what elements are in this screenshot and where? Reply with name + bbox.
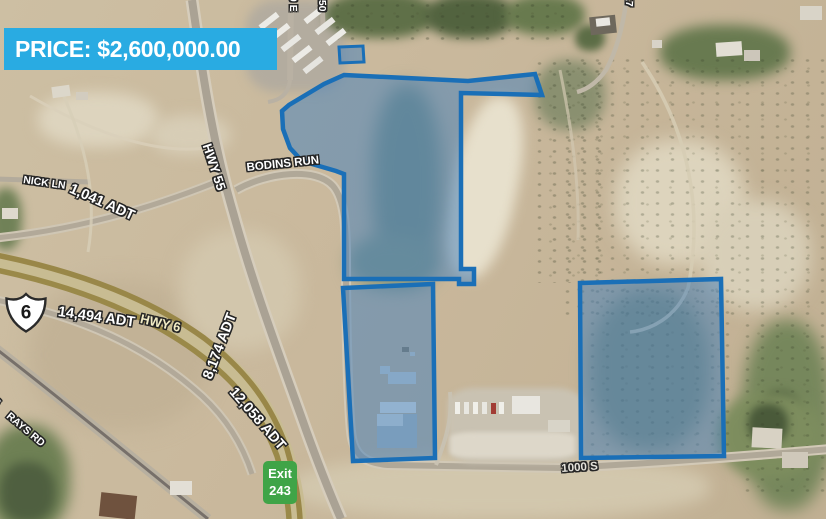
- traffic-count-12058: 12,058 ADT: [225, 385, 288, 454]
- aerial-listing-map: NICK LN 1,041 ADT HWY 55 BODINS RUN 14,4…: [0, 0, 826, 519]
- road-label-partial-s: S: [0, 396, 2, 409]
- building: [782, 452, 808, 468]
- building: [751, 427, 782, 449]
- building: [402, 347, 409, 352]
- building: [716, 41, 743, 57]
- building: [491, 403, 496, 414]
- building: [800, 6, 822, 20]
- building: [380, 402, 416, 413]
- building: [99, 492, 137, 519]
- building: [548, 420, 570, 432]
- terrain-patch: [180, 230, 300, 350]
- scrub-texture: [330, 0, 575, 42]
- building: [473, 402, 478, 414]
- building: [482, 402, 487, 414]
- road-label-1000-s: 1000 S: [561, 460, 598, 475]
- vegetation: [0, 188, 22, 250]
- building: [652, 40, 662, 48]
- building: [744, 50, 760, 61]
- building: [596, 17, 611, 26]
- building: [170, 481, 192, 495]
- terrain-patch: [38, 92, 158, 147]
- road-label-hwy55: HWY 55: [199, 142, 227, 192]
- traffic-count-1041: 1,041 ADT: [67, 182, 137, 225]
- exit-sign-line2: 243: [263, 483, 297, 499]
- exit-243-sign: Exit 243: [263, 461, 297, 504]
- road-label-bodins-run: BODINS RUN: [246, 154, 320, 174]
- scrub-texture: [585, 285, 740, 465]
- exit-sign-line1: Exit: [263, 466, 297, 482]
- building: [388, 372, 416, 384]
- building: [76, 92, 88, 100]
- building: [410, 352, 415, 356]
- building: [512, 396, 540, 414]
- scrub-texture: [740, 320, 826, 500]
- road-label-nick-ln: NICK LN: [22, 175, 66, 192]
- building: [464, 402, 469, 414]
- vegetation: [0, 462, 55, 519]
- scrub-texture: [532, 58, 607, 283]
- terrain-patch: [433, 90, 535, 284]
- road-label-50-e: 50 E: [286, 0, 298, 12]
- terrain-patch: [450, 432, 575, 458]
- building: [377, 414, 403, 426]
- vegetation: [348, 235, 438, 290]
- route-shield-number: 6: [21, 303, 32, 324]
- price-banner: PRICE: $2,600,000.00: [4, 28, 277, 70]
- terrain-patch: [150, 115, 230, 155]
- building: [2, 208, 18, 219]
- road-label-17: 17: [622, 0, 634, 7]
- building: [455, 402, 460, 414]
- road-label-150: 150: [315, 0, 327, 12]
- building: [499, 402, 504, 414]
